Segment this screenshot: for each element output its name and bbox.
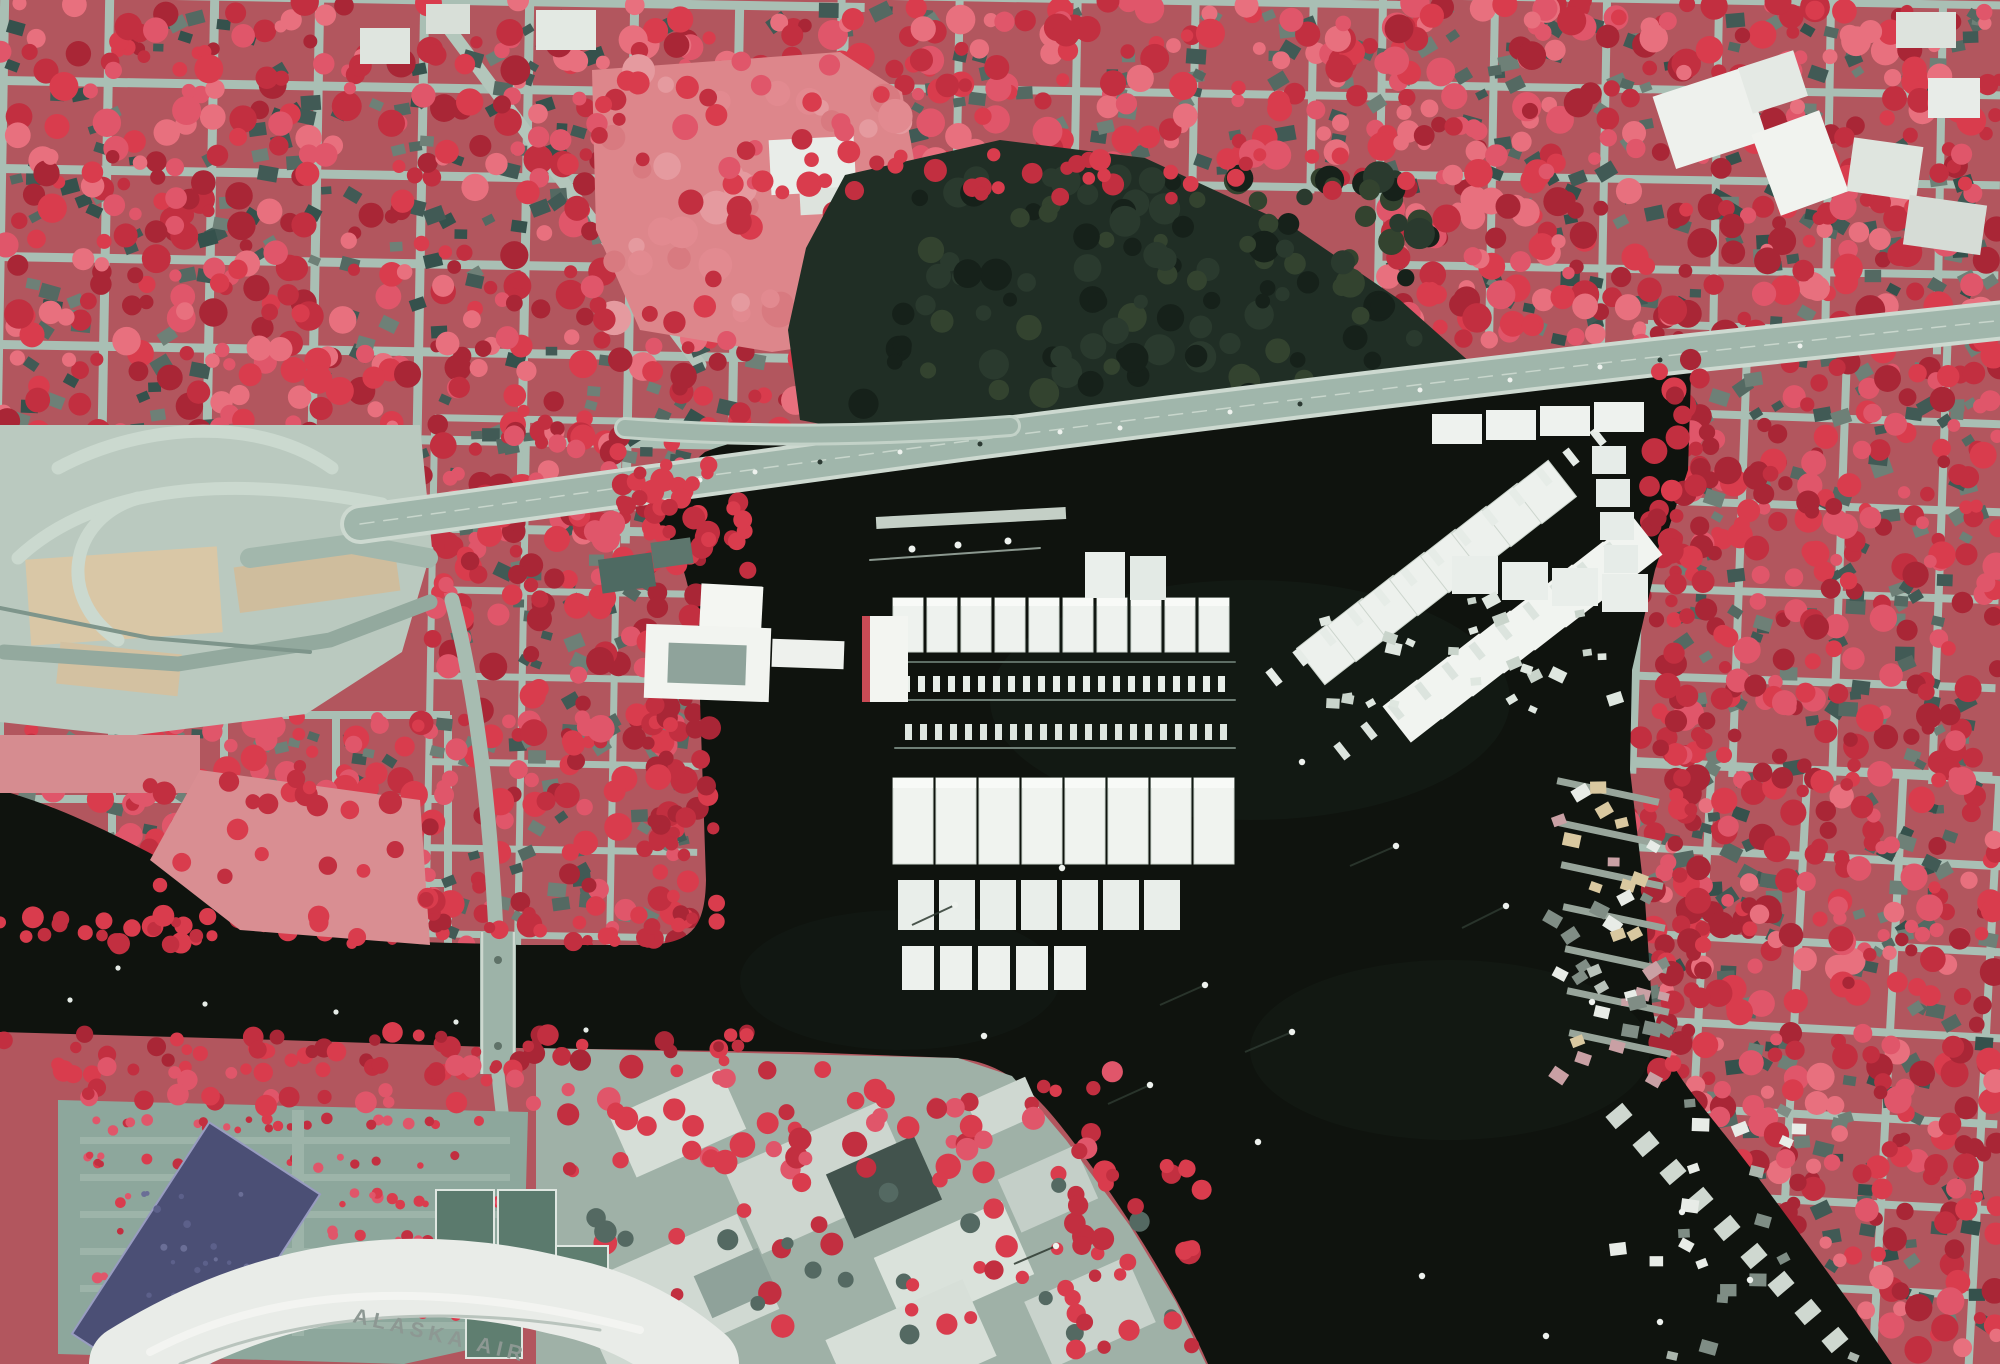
- commercial-buildings-shape: [536, 10, 596, 50]
- commercial-buildings-shape: [1928, 78, 1980, 118]
- commercial-buildings-shape: [426, 4, 470, 34]
- aerial-photo-canvas: ALASKA AIR: [0, 0, 2000, 1364]
- boat-shed: [898, 880, 1180, 930]
- drawbridge: [480, 932, 516, 1074]
- canal-bridge-shape: [494, 1042, 502, 1050]
- aerial-photo: ALASKA AIR: [0, 0, 2000, 1364]
- west-shore-buildings-shape: [650, 537, 693, 568]
- west-shore-buildings-shape: [772, 639, 845, 669]
- commercial-buildings-shape: [1847, 137, 1924, 200]
- bay-water-shape: [740, 910, 1060, 1050]
- freeway-shape: [625, 426, 1010, 435]
- commercial-buildings-shape: [360, 28, 410, 64]
- bay-water-shape: [1250, 960, 1650, 1140]
- commercial-buildings-shape: [1896, 12, 1956, 48]
- marina-center-shape: [1130, 556, 1166, 600]
- canal-bridge-shape: [494, 956, 502, 964]
- boat-shed: [902, 946, 1086, 990]
- west-shore-buildings-shape: [862, 616, 870, 702]
- marina-center-shape: [1085, 552, 1125, 598]
- west-shore-buildings-shape: [667, 643, 746, 686]
- construction-area: [25, 546, 223, 645]
